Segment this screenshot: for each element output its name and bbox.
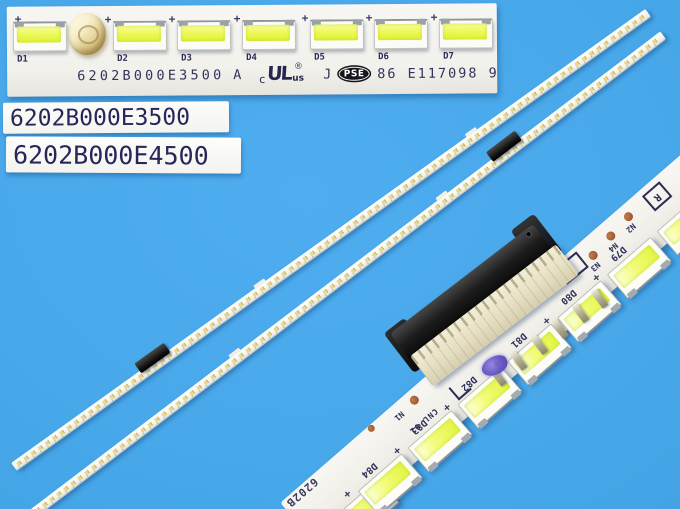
led-package: [242, 20, 296, 50]
pse-prefix-text: J: [323, 66, 334, 82]
led-lens: [314, 24, 358, 40]
led-chip: + D4: [242, 20, 298, 66]
led-label: D2: [117, 54, 128, 64]
revision-text: A: [233, 67, 244, 83]
connector-pin: [531, 335, 549, 355]
polarity-plus-mark: +: [169, 13, 176, 26]
led-lens: [378, 24, 422, 40]
led-package: [113, 21, 167, 51]
sticker-part-number: 6202B000E4500: [13, 140, 209, 170]
led-lens: [117, 26, 161, 42]
connector-pin: [510, 351, 528, 371]
ul-logo-c: c: [259, 73, 265, 86]
led-chip: + D2: [113, 21, 169, 67]
led-electrode: [660, 259, 671, 270]
polarity-plus-mark: +: [366, 11, 373, 24]
cert-number-text: 86 E117098 9: [377, 65, 499, 82]
led-label: D3: [181, 53, 192, 63]
sticker-part-number: 6202B000E3500: [10, 104, 190, 131]
led-chip: + D1: [13, 21, 69, 67]
led-electrode: [378, 504, 389, 509]
led-lens: [181, 25, 225, 41]
led-electrode: [627, 288, 638, 299]
photo-background: 6202B + D84 + D83 + D82: [0, 0, 680, 509]
polarity-plus-mark: +: [431, 11, 438, 24]
led-strip-closeup-top: + D1 + D2 + D3 + D4 + D5 + D6: [7, 3, 498, 96]
led-chip: + D6: [374, 19, 430, 65]
led-lens: [17, 26, 61, 42]
led-electrode: [411, 476, 422, 487]
polarity-plus-mark: +: [105, 13, 112, 26]
standoff-ring: [78, 25, 99, 44]
part-label-sticker-e3500: 6202B000E3500: [3, 101, 229, 134]
polarity-plus-mark: +: [302, 12, 309, 25]
part-number-text: 6202B000E3500: [77, 67, 224, 84]
led-lens: [246, 25, 290, 41]
pse-logo: PSE: [337, 65, 371, 82]
led-chip: + D5: [310, 19, 366, 65]
led-package: [310, 19, 364, 49]
led-label: D1: [17, 55, 28, 65]
led-package: [13, 21, 67, 51]
led-lens: [443, 23, 487, 39]
led-label: D6: [378, 52, 389, 62]
led-chip: + D3: [177, 20, 233, 66]
ul-logo: c UL ® us: [259, 63, 317, 89]
silkscreen-text-line: 6202B000E3500 A c UL ® us J PSE 86 E1170…: [7, 61, 497, 90]
ul-logo-us: us: [292, 74, 304, 84]
connector-pin: [551, 319, 569, 339]
led-label: D4: [246, 53, 257, 63]
led-chip: + D7: [439, 18, 495, 64]
led-label: D7: [443, 52, 454, 62]
connector-pin: [572, 303, 590, 323]
led-strip-closeup-bottom: 6202B + D84 + D83 + D82: [318, 63, 680, 509]
led-electrode: [427, 461, 438, 472]
led-package: [439, 18, 493, 48]
led-package: [374, 19, 428, 49]
led-label: D5: [314, 52, 325, 62]
led-package: [177, 20, 231, 50]
pse-logo-text: PSE: [344, 69, 365, 79]
part-label-sticker-e4500: 6202B000E4500: [6, 136, 241, 173]
ink-qc-mark: [479, 353, 510, 379]
ul-logo-monogram: UL: [266, 63, 291, 85]
registered-mark: ®: [295, 61, 302, 71]
polarity-plus-mark: +: [234, 12, 241, 25]
